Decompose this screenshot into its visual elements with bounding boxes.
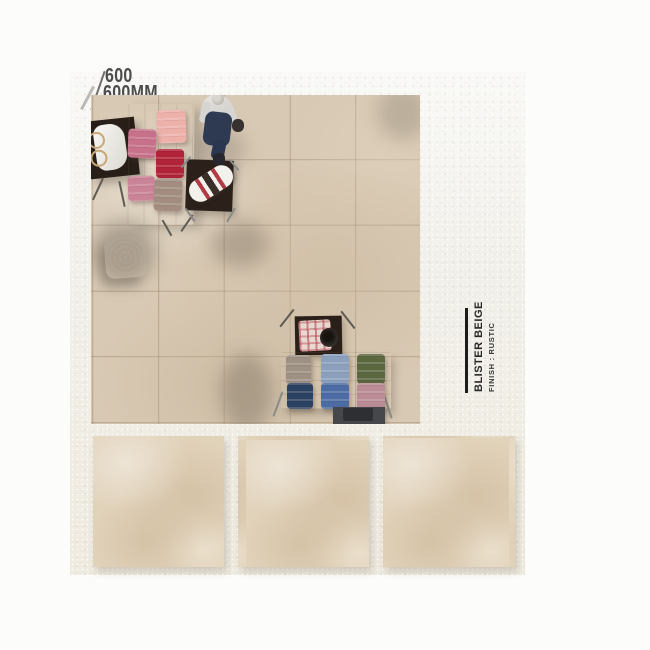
folded-clothes-rose xyxy=(357,383,385,409)
room-scene-photo xyxy=(91,95,420,424)
floor-shadow xyxy=(211,221,269,267)
folded-clothes-taupe xyxy=(286,355,311,384)
shopper-shoe xyxy=(213,153,225,165)
dark-hat xyxy=(320,328,338,347)
folded-clothes-pink xyxy=(156,110,186,144)
product-label-bar xyxy=(465,308,468,393)
product-finish: FINISH : RUSTIC xyxy=(487,307,496,392)
product-label: BLISTER BEIGE FINISH : RUSTIC xyxy=(473,307,496,392)
handbag-handle xyxy=(91,131,106,150)
folded-clothes-mauve xyxy=(128,129,157,159)
folded-clothes-red xyxy=(156,149,184,178)
shopper-handbag xyxy=(232,119,244,132)
tile-swatch-2 xyxy=(238,436,369,567)
folded-clothes-dusty-pink xyxy=(128,176,156,202)
white-pouf xyxy=(104,236,148,280)
folded-clothes-blue xyxy=(321,383,349,409)
floor-shadow xyxy=(221,353,273,424)
catalog-page: 600 600MM xyxy=(0,0,650,650)
folded-clothes-olive xyxy=(357,354,385,384)
folded-clothes-taupe xyxy=(153,179,182,212)
tile-swatch-3 xyxy=(383,436,515,567)
tile-swatch-1 xyxy=(93,436,224,567)
folded-clothes-denim xyxy=(321,354,349,384)
folded-clothes-navy xyxy=(287,383,313,409)
handbag-handle xyxy=(91,149,109,168)
product-name: BLISTER BEIGE xyxy=(473,307,485,392)
bench-item xyxy=(343,408,373,421)
